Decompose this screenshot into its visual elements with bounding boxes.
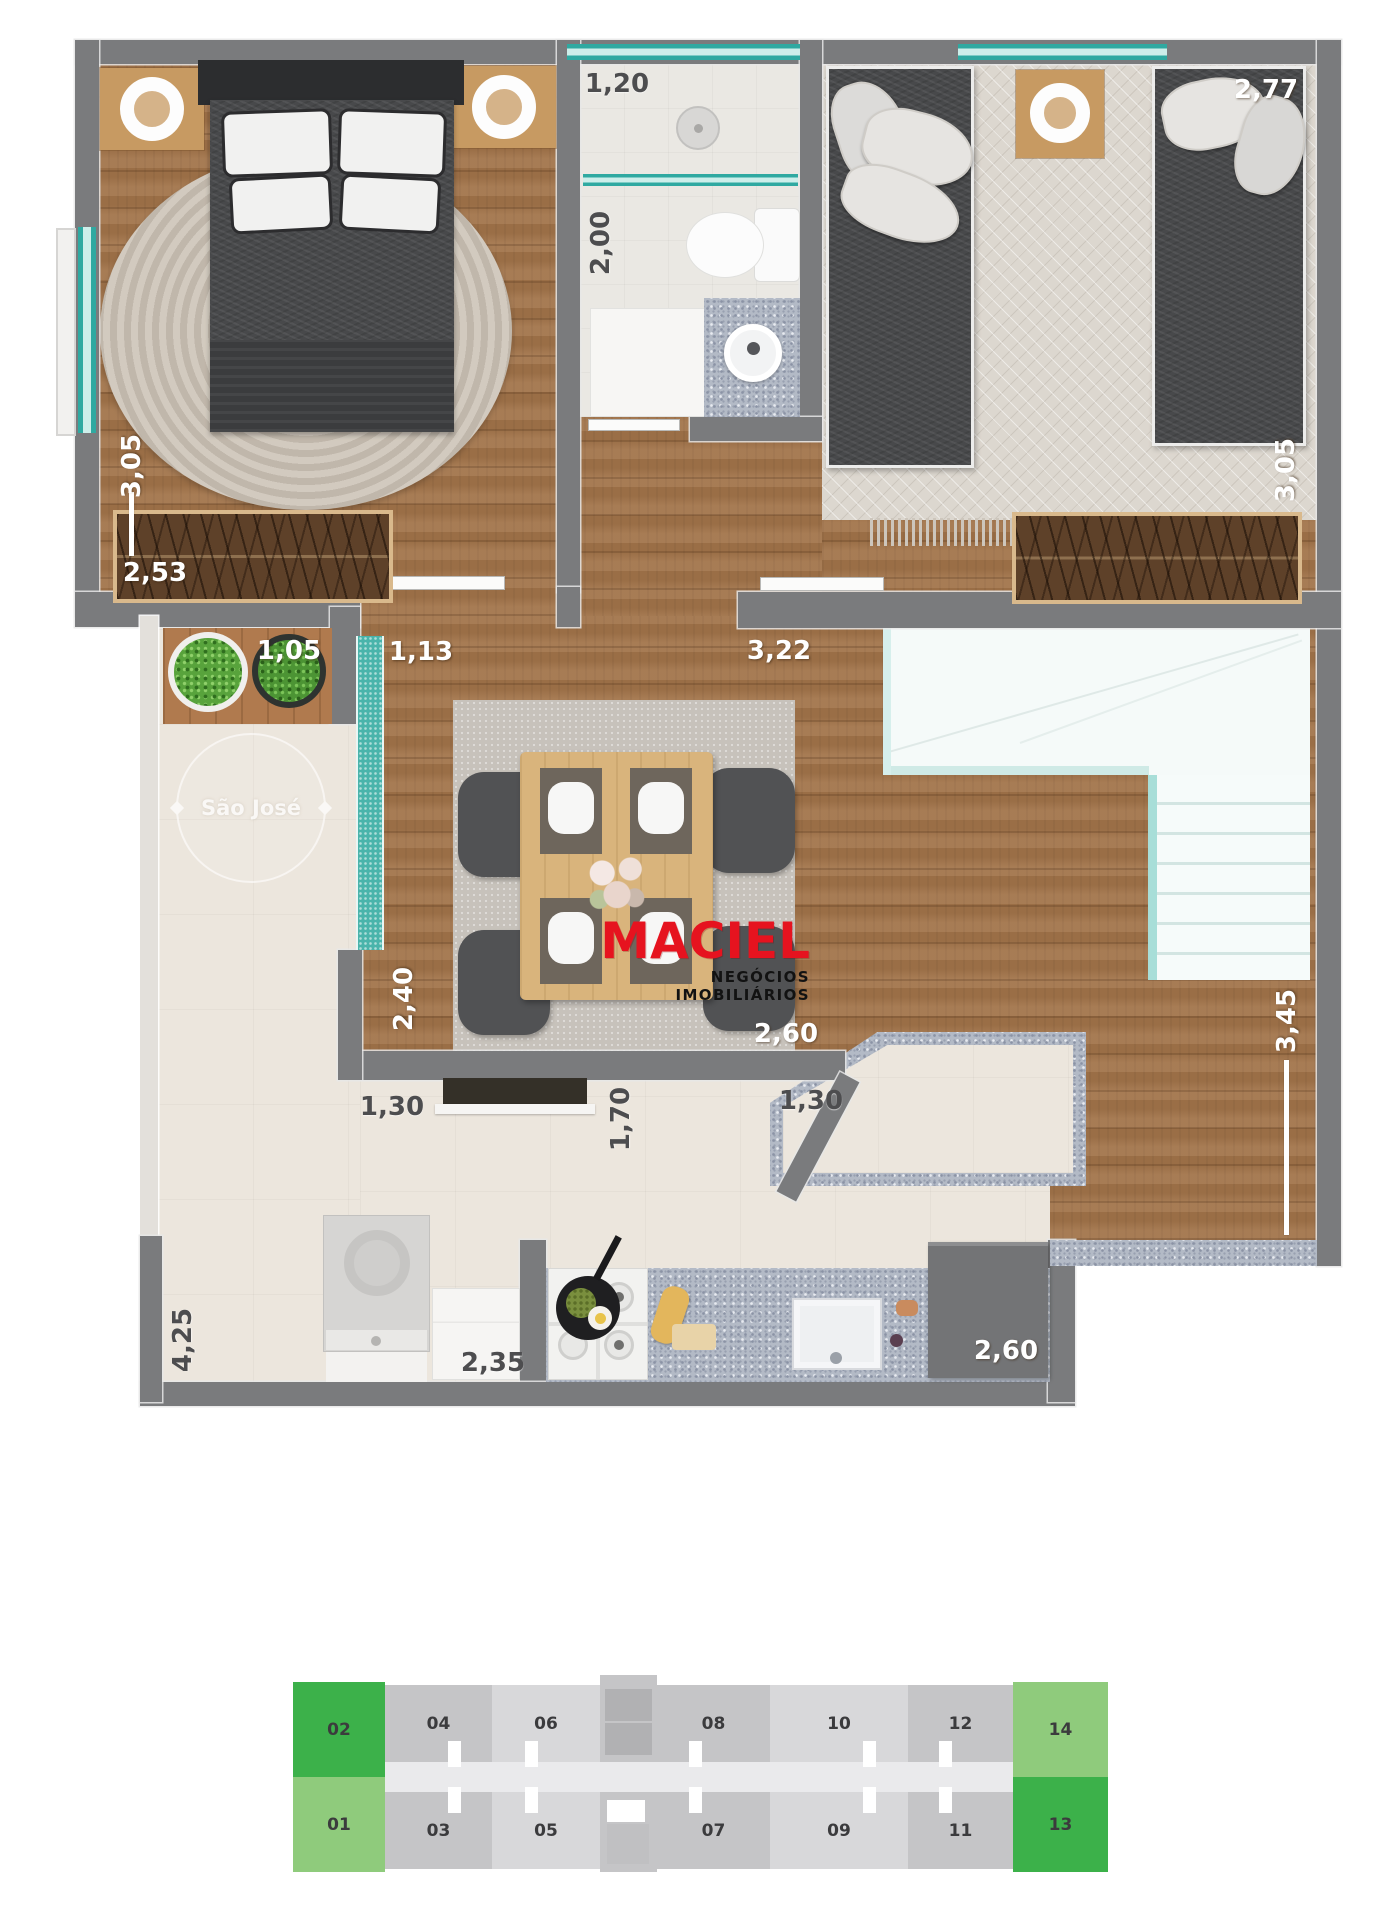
unit-13: 13 [1013, 1777, 1108, 1872]
wall-bath-bed2 [800, 40, 822, 440]
pass-counter [443, 1078, 587, 1104]
washer-base [326, 1352, 427, 1382]
door-notch [939, 1787, 952, 1813]
door-notch [863, 1741, 876, 1767]
door-notch [525, 1787, 538, 1813]
wall-glass-side [338, 950, 362, 1080]
door-notch [689, 1741, 702, 1767]
wall-living-bottom [360, 1051, 845, 1080]
bathroom-door [588, 419, 680, 431]
dim-bedroom2-width: 2,77 [1234, 75, 1298, 105]
wall-kitchen-left [140, 1236, 162, 1402]
door-notch [939, 1741, 952, 1767]
bathroom-window [567, 44, 800, 60]
wall-right [1317, 40, 1341, 1266]
plate-1 [548, 782, 594, 834]
unit-12: 12 [908, 1685, 1013, 1762]
watermark-badge: São José [176, 733, 326, 883]
core-stair-white [607, 1800, 645, 1822]
bed1-blanket-fold [210, 340, 454, 432]
unit-01: 01 [293, 1777, 385, 1872]
pass-counter-shelf [435, 1104, 595, 1114]
plate-2 [638, 782, 684, 834]
dim-bedroom1-wardrobe: 2,53 [123, 558, 187, 588]
bed1-headboard [198, 60, 464, 105]
vanity-cabinet [590, 308, 706, 417]
sink-faucet-dot [830, 1352, 842, 1364]
bedroom1-door [392, 576, 505, 590]
unit-02: 02 [293, 1682, 385, 1777]
dim-living-depth: 2,40 [389, 967, 419, 1031]
dim-pass-left: 1,30 [360, 1092, 424, 1122]
dim-bedroom1-side: 3,05 [117, 434, 147, 498]
bedroom2-lamp-icon [1030, 83, 1090, 143]
dim-terrace-width: 1,05 [257, 636, 321, 666]
dim-kitchen-right: 2,60 [974, 1336, 1038, 1366]
dim-kitchen-depth: 4,25 [168, 1308, 198, 1372]
elevator-1 [605, 1689, 652, 1721]
bedroom1-window [78, 227, 96, 433]
washer-drum-icon [344, 1230, 410, 1296]
door-notch [448, 1787, 461, 1813]
wall-bath-bottom [690, 417, 822, 441]
rug-fringe [870, 518, 1018, 546]
wall-hall-stub [557, 587, 580, 627]
shower-head-dot [694, 124, 703, 133]
living-door [760, 577, 884, 591]
bedroom2-window [958, 44, 1167, 60]
corridor-bump-center [586, 1757, 671, 1797]
dim-kitchen-left: 2,35 [461, 1348, 525, 1378]
unit-11: 11 [908, 1792, 1013, 1869]
elevator-2 [605, 1723, 652, 1755]
window-ledge [56, 228, 76, 436]
unit-09: 09 [770, 1792, 908, 1869]
wall-bottom [140, 1382, 1075, 1406]
stairs-glass-bottom [883, 766, 1149, 775]
door-notch [689, 1787, 702, 1813]
dim-dining-width: 2,60 [754, 1019, 818, 1049]
dim-bath-depth: 2,00 [586, 211, 616, 275]
unit-04: 04 [385, 1685, 492, 1762]
unit-location-diagram: 02 01 14 13 04 06 08 10 12 03 05 07 09 1… [293, 1675, 1110, 1872]
pan-egg-yolk [595, 1313, 606, 1324]
dim-pass-height: 1,70 [606, 1087, 636, 1151]
plant-1-icon [168, 632, 248, 712]
bedroom1-wardrobe [113, 510, 393, 603]
counter-right-strip [1050, 1240, 1317, 1266]
dining-chair-2 [703, 768, 795, 873]
dim-bedroom2-side: 3,05 [1271, 438, 1301, 502]
toilet-bowl [686, 212, 764, 278]
wall-terrace-left [140, 616, 158, 1236]
watermark-name: São José [201, 796, 301, 820]
floorplan-page: São José 3,05 2,53 1,20 2,0 [0, 0, 1400, 1910]
stairs-glass-top [883, 628, 891, 775]
dim-bath-width: 1,20 [585, 69, 649, 99]
bed1-pillow-3 [229, 173, 334, 234]
unit-06: 06 [492, 1685, 600, 1762]
brand-logo: MACIEL NEGÓCIOS IMOBILIÁRIOS [585, 916, 810, 1004]
bed1-pillow-4 [339, 173, 442, 234]
cutting-board [672, 1324, 716, 1350]
brand-tagline: NEGÓCIOS IMOBILIÁRIOS [585, 968, 810, 1004]
unit-05: 05 [492, 1792, 600, 1869]
burner-dot-2 [614, 1340, 624, 1350]
door-notch [448, 1741, 461, 1767]
bath-faucet-dot [747, 342, 760, 355]
stairs-steps [1157, 775, 1310, 980]
washer-dot [371, 1336, 381, 1346]
lamp-left-icon [120, 77, 184, 141]
dim-hall-width: 1,13 [389, 637, 453, 667]
door-notch [525, 1741, 538, 1767]
unit-10: 10 [770, 1685, 908, 1762]
terrace-glass-door [356, 636, 384, 950]
food-item-1 [896, 1300, 918, 1316]
stairs-glass-left [1148, 775, 1157, 980]
dim-hall-wall: 3,22 [747, 636, 811, 666]
dim-pass-right: 1,30 [779, 1086, 843, 1116]
unit-08: 08 [657, 1685, 770, 1762]
tick-305 [129, 492, 134, 556]
unit-14: 14 [1013, 1682, 1108, 1777]
wall-bed1-bath [557, 40, 580, 592]
lamp-right-icon [472, 75, 536, 139]
food-item-2 [890, 1334, 903, 1347]
tick-345 [1284, 1060, 1289, 1235]
bed1-pillow-2 [337, 108, 447, 178]
unit-03: 03 [385, 1792, 492, 1869]
core-stair-gray [607, 1824, 649, 1864]
shower-glass-shelf [583, 174, 798, 186]
door-notch [863, 1787, 876, 1813]
brand-name: MACIEL [585, 916, 810, 966]
unit-07: 07 [657, 1792, 770, 1869]
bedroom2-wardrobe [1012, 512, 1302, 604]
bed1-pillow-1 [221, 108, 333, 178]
dim-stairs-depth: 3,45 [1272, 989, 1302, 1053]
